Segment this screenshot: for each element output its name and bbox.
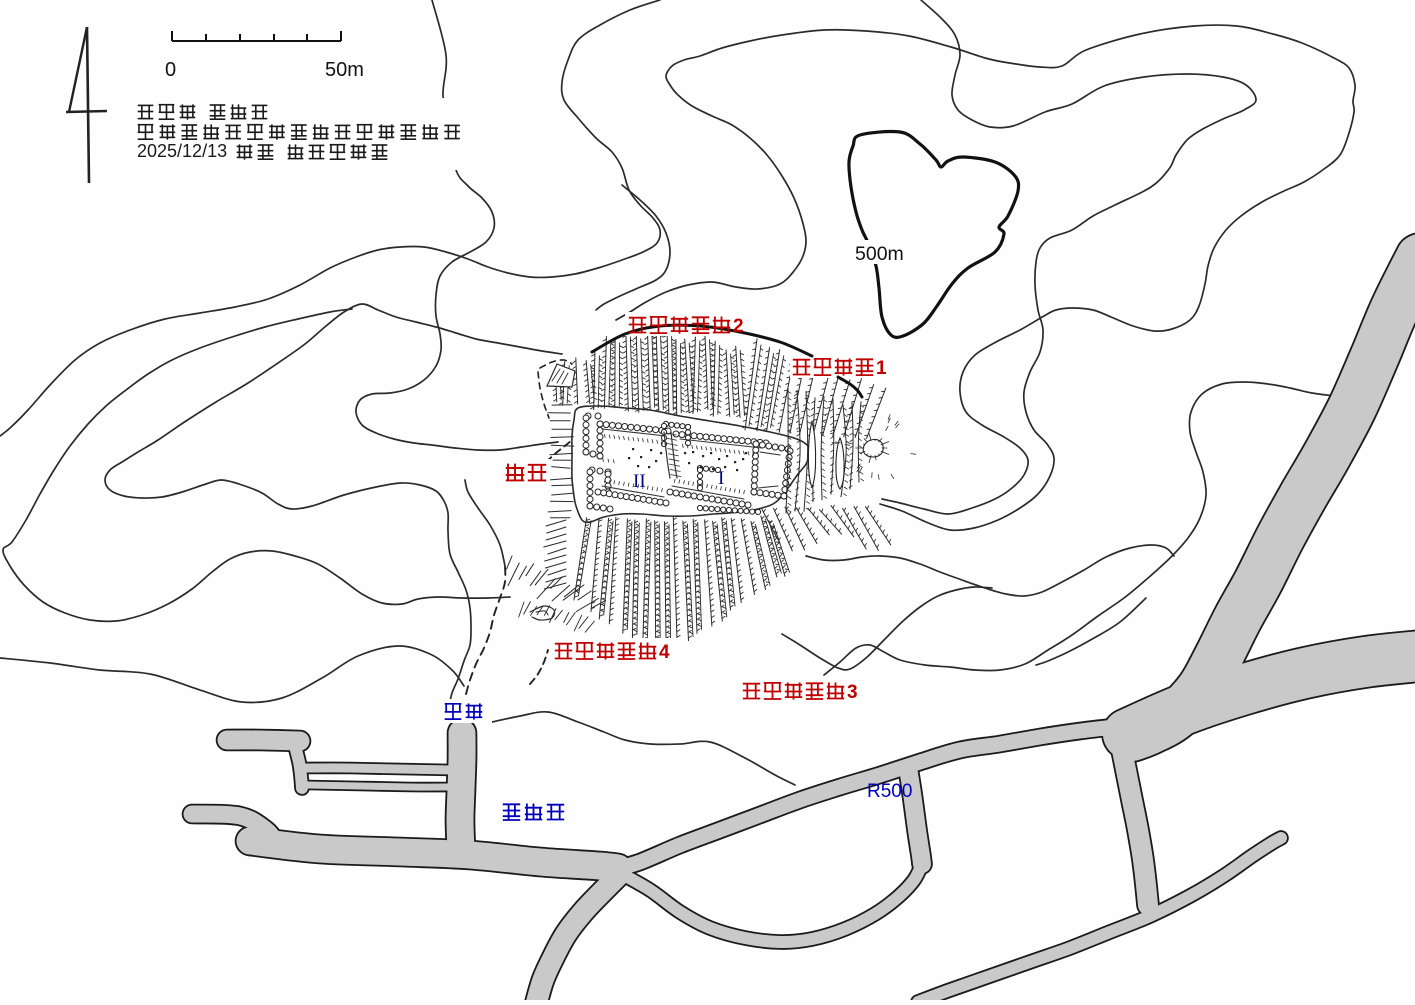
svg-text:1: 1 [876, 358, 887, 379]
svg-text:50m: 50m [325, 59, 364, 81]
svg-text:4: 4 [659, 642, 670, 663]
svg-text:3: 3 [847, 682, 858, 703]
svg-text:2: 2 [733, 316, 744, 337]
svg-text:0: 0 [165, 59, 176, 81]
svg-text:2025/12/13: 2025/12/13 [137, 141, 227, 161]
svg-text:R500: R500 [867, 781, 912, 802]
svg-text:II: II [633, 471, 646, 492]
svg-text:I: I [718, 468, 724, 489]
svg-text:500m: 500m [855, 243, 904, 265]
